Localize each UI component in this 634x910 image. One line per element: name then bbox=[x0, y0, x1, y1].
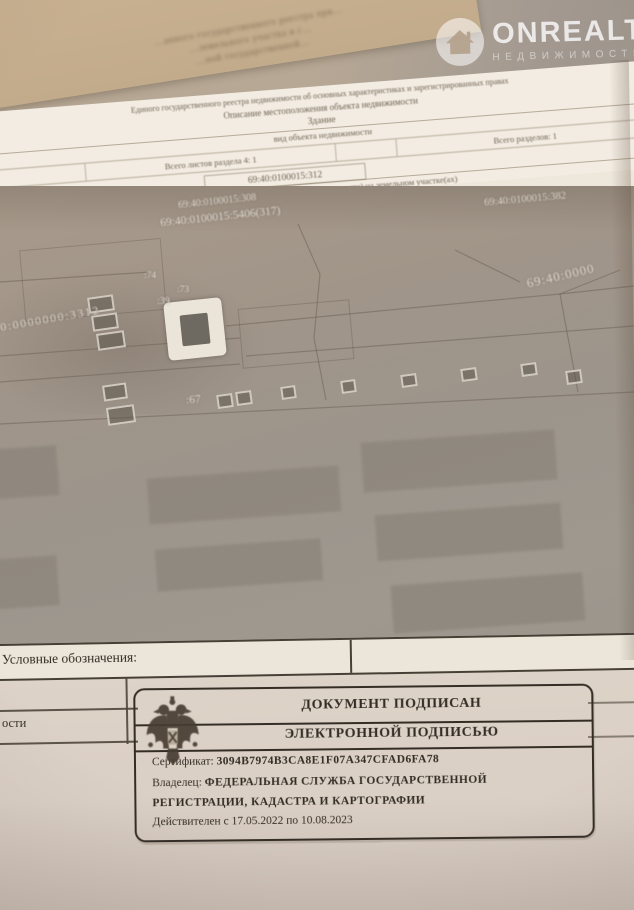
structure-marker bbox=[216, 393, 234, 409]
watermark-text: ONREALT НЕДВИЖИМОСТЬ bbox=[491, 16, 634, 63]
map-label: :73 bbox=[177, 285, 189, 295]
double-eagle-emblem-icon bbox=[143, 694, 202, 773]
structure-marker bbox=[565, 369, 583, 385]
structure-marker bbox=[102, 382, 128, 401]
document-photo: …анного государственного реестра при… …з… bbox=[0, 0, 634, 910]
stamp-title-2: ЭЛЕКТРОННОЙ ПОДПИСЬЮ bbox=[200, 724, 584, 744]
building-block bbox=[0, 445, 60, 501]
certificate-value: 3094B7974B3CA8E1F07A347CFAD6FA78 bbox=[217, 753, 440, 767]
structure-marker bbox=[400, 373, 418, 388]
map-label: :67 bbox=[186, 393, 202, 406]
map-label: :39 bbox=[157, 296, 170, 307]
structure-marker bbox=[340, 379, 357, 394]
owner-value-2: РЕГИСТРАЦИИ, КАДАСТРА И КАРТОГРАФИИ bbox=[152, 794, 425, 809]
stamp-rule bbox=[134, 746, 594, 752]
structure-marker bbox=[235, 390, 253, 406]
watermark-brand: ONREALT bbox=[492, 16, 634, 49]
signature-stamp: ДОКУМЕНТ ПОДПИСАН ЭЛЕКТРОННОЙ ПОДПИСЬЮ С… bbox=[133, 684, 595, 843]
map-label: :74 bbox=[144, 271, 156, 281]
structure-marker bbox=[520, 362, 538, 377]
watermark: ONREALT НЕДВИЖИМОСТЬ bbox=[435, 13, 632, 66]
structure-marker bbox=[460, 367, 478, 382]
stamp-title-1: ДОКУМЕНТ ПОДПИСАН bbox=[199, 695, 583, 715]
house-icon bbox=[436, 18, 483, 65]
row-text-fragment: ости bbox=[2, 716, 26, 731]
structure-marker bbox=[280, 385, 297, 400]
cadastral-map: 69:40:0100015:308 69:40:0100015:5406(317… bbox=[0, 186, 634, 656]
sheets-row-cell bbox=[0, 164, 87, 188]
legend-divider bbox=[350, 640, 353, 673]
building-footprint bbox=[163, 297, 227, 361]
stamp-certificate: Сертификат: 3094B7974B3CA8E1F07A347CFAD6… bbox=[152, 752, 584, 769]
stamp-validity: Действителен с 17.05.2022 по 10.08.2023 bbox=[153, 812, 585, 829]
structure-marker bbox=[106, 404, 136, 426]
legend-title: Условные обозначения: bbox=[2, 650, 137, 668]
sheets-row-cell bbox=[336, 139, 398, 161]
owner-label: Владелец: bbox=[152, 777, 202, 790]
building-block bbox=[0, 555, 60, 611]
stamp-owner: Владелец: ФЕДЕРАЛЬНАЯ СЛУЖБА ГОСУДАРСТВЕ… bbox=[152, 773, 584, 790]
stamp-owner-2: РЕГИСТРАЦИИ, КАДАСТРА И КАРТОГРАФИИ bbox=[152, 793, 584, 810]
watermark-logo-circle bbox=[435, 17, 484, 66]
parcel-outline bbox=[238, 299, 355, 369]
owner-value-1: ФЕДЕРАЛЬНАЯ СЛУЖБА ГОСУДАРСТВЕННОЙ bbox=[205, 774, 487, 789]
building-courtyard bbox=[180, 313, 211, 347]
